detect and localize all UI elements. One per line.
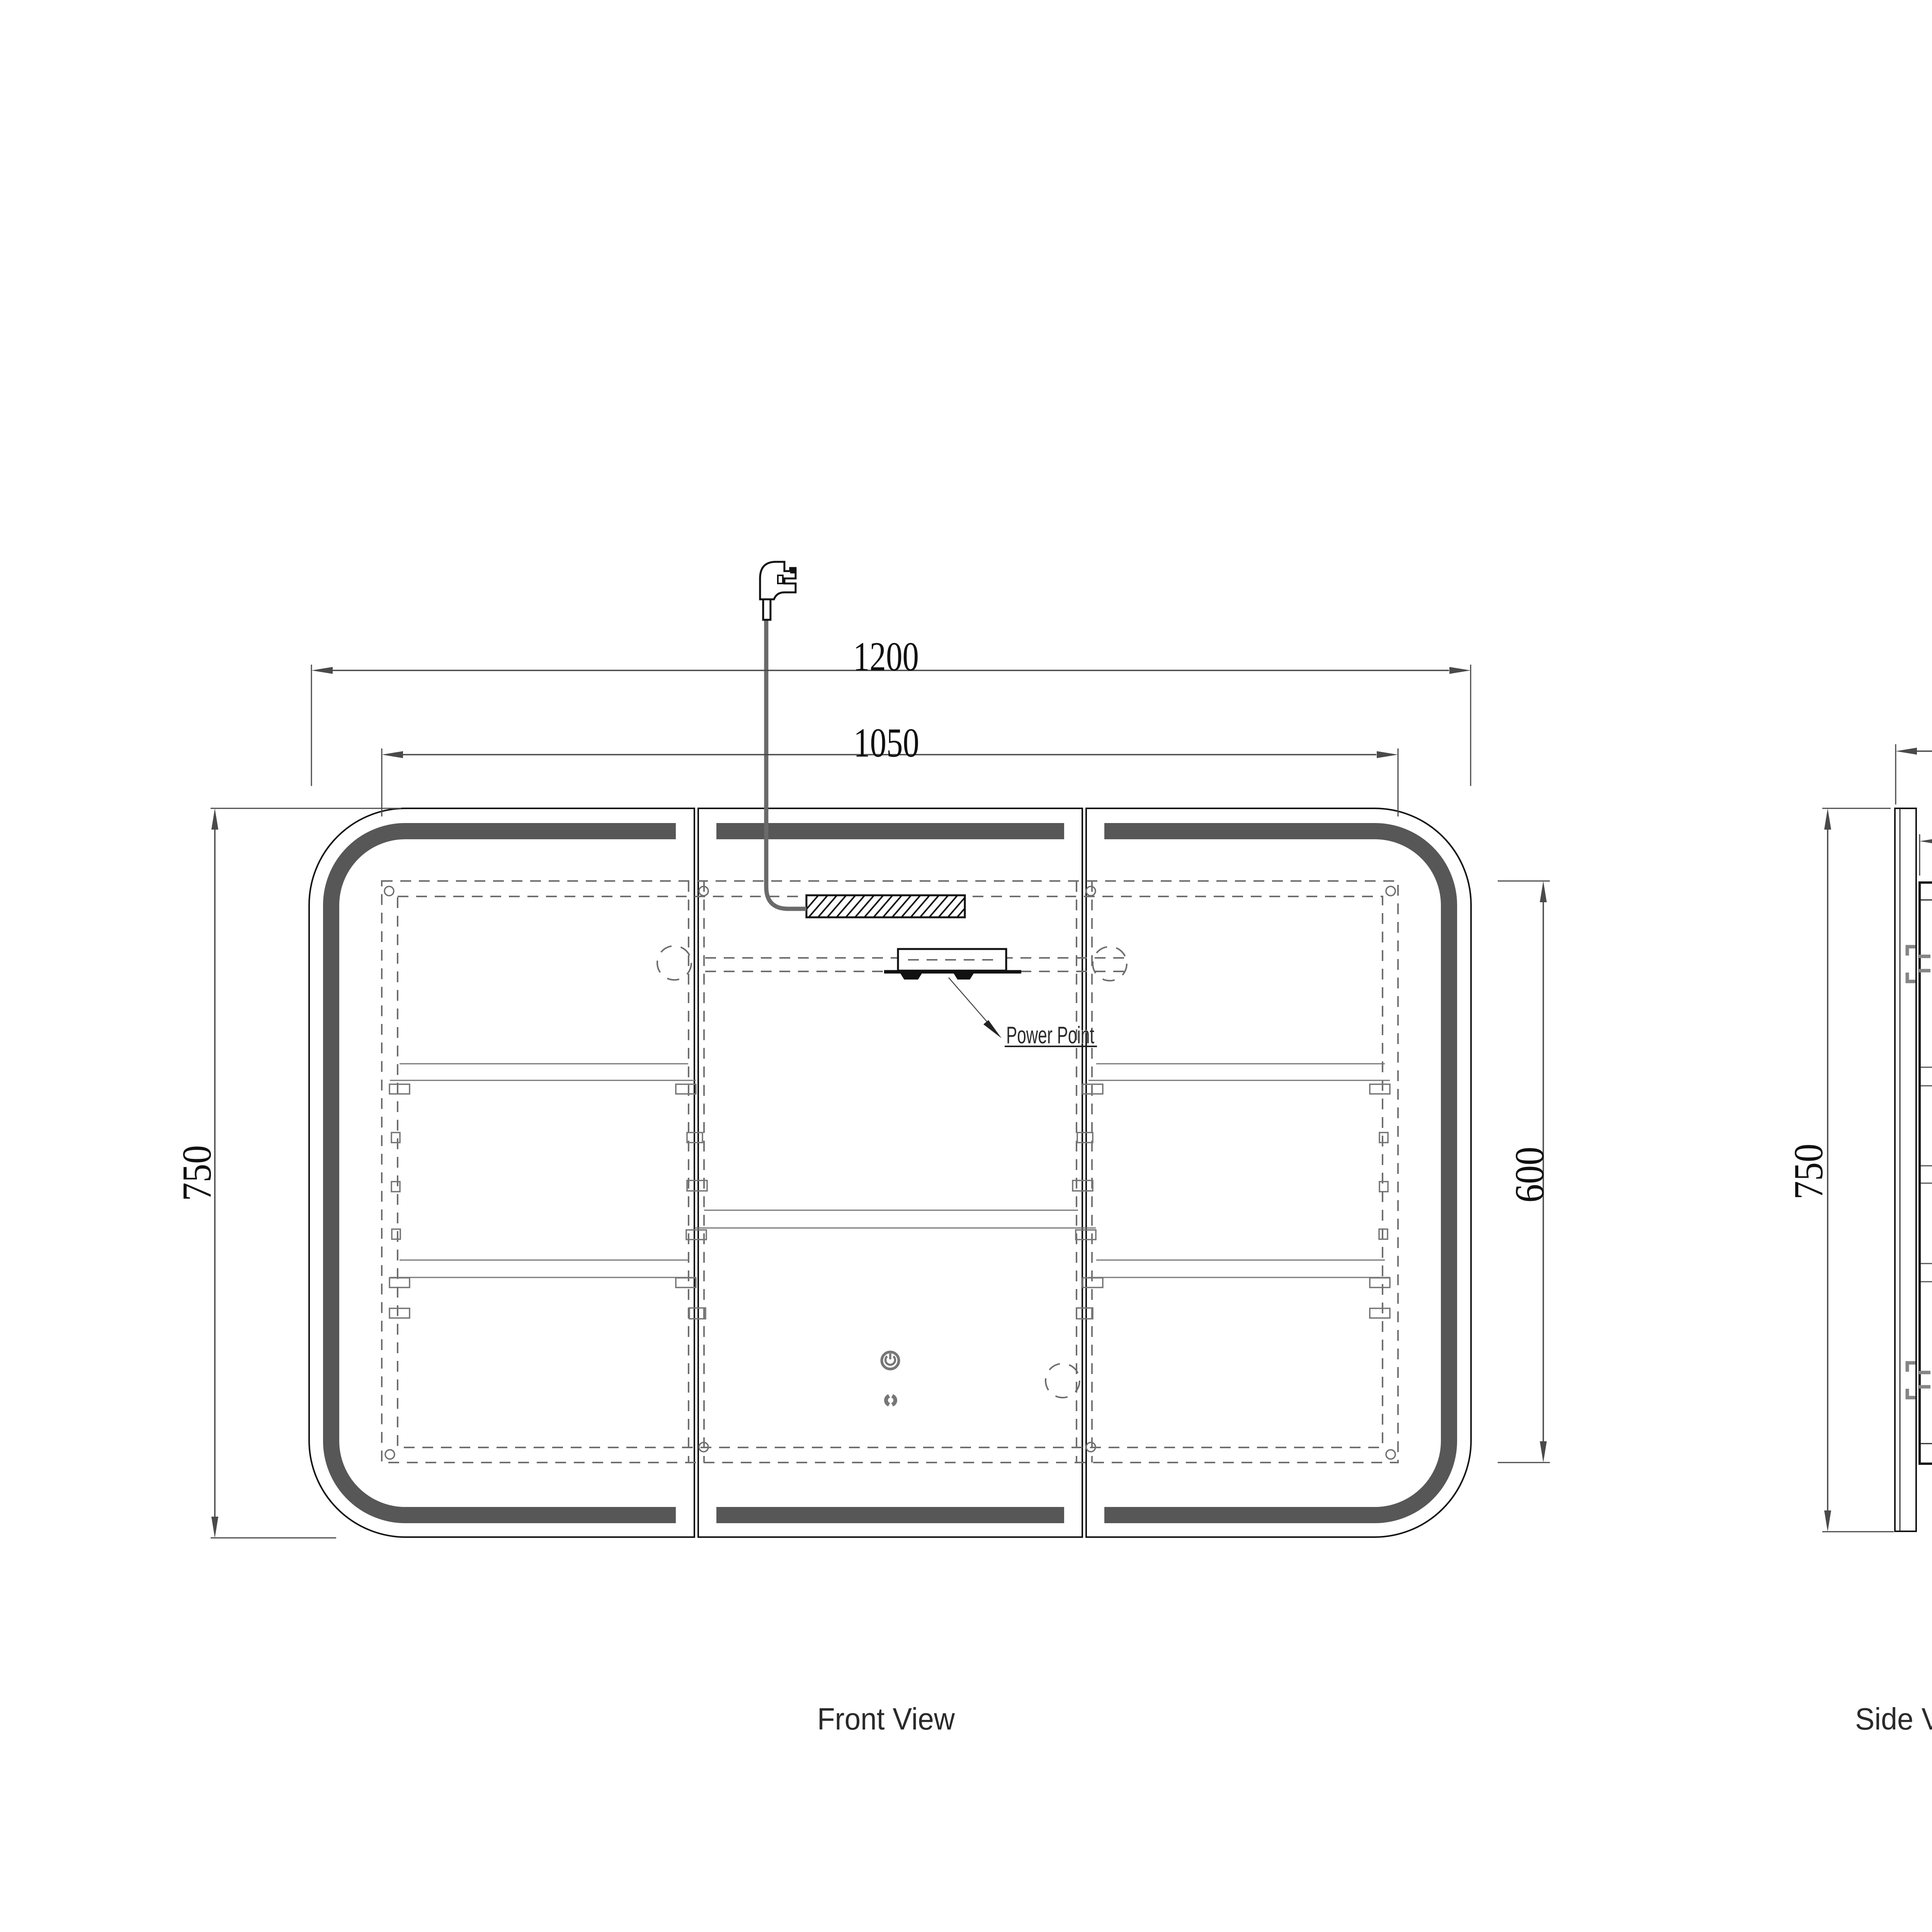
svg-text:1050: 1050 [854, 720, 919, 766]
svg-text:Power Point: Power Point [1006, 1022, 1094, 1049]
svg-text:750: 750 [1786, 1144, 1832, 1200]
svg-text:1200: 1200 [853, 634, 919, 680]
svg-text:600: 600 [1507, 1147, 1553, 1203]
svg-text:Side View: Side View [1855, 1702, 1932, 1736]
svg-text:Front View: Front View [817, 1702, 955, 1736]
svg-text:750: 750 [174, 1145, 220, 1201]
